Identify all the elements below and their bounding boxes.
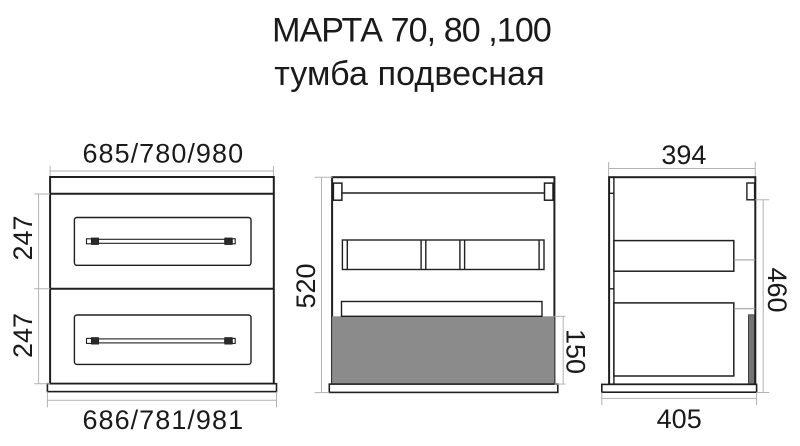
svg-text:394: 394 bbox=[661, 140, 706, 170]
svg-text:тумба подвесная: тумба подвесная bbox=[274, 55, 545, 93]
svg-text:247: 247 bbox=[8, 313, 38, 358]
svg-text:247: 247 bbox=[8, 215, 38, 260]
svg-text:МАРТА 70, 80 ,100: МАРТА 70, 80 ,100 bbox=[272, 12, 551, 50]
svg-text:520: 520 bbox=[291, 263, 321, 308]
svg-text:685/780/980: 685/780/980 bbox=[82, 139, 244, 169]
svg-text:460: 460 bbox=[762, 267, 792, 312]
svg-text:405: 405 bbox=[657, 404, 702, 434]
svg-text:686/781/981: 686/781/981 bbox=[82, 405, 244, 435]
svg-text:150: 150 bbox=[561, 329, 591, 374]
